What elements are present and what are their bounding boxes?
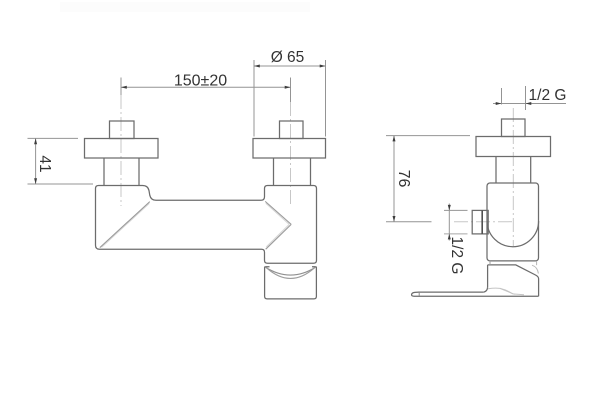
svg-text:1/2 G: 1/2 G <box>448 237 465 275</box>
svg-text:76: 76 <box>395 170 412 188</box>
svg-text:1/2 G: 1/2 G <box>529 87 567 104</box>
svg-text:41: 41 <box>36 155 53 172</box>
svg-text:Ø 65: Ø 65 <box>271 49 305 66</box>
svg-text:150±20: 150±20 <box>174 73 227 90</box>
